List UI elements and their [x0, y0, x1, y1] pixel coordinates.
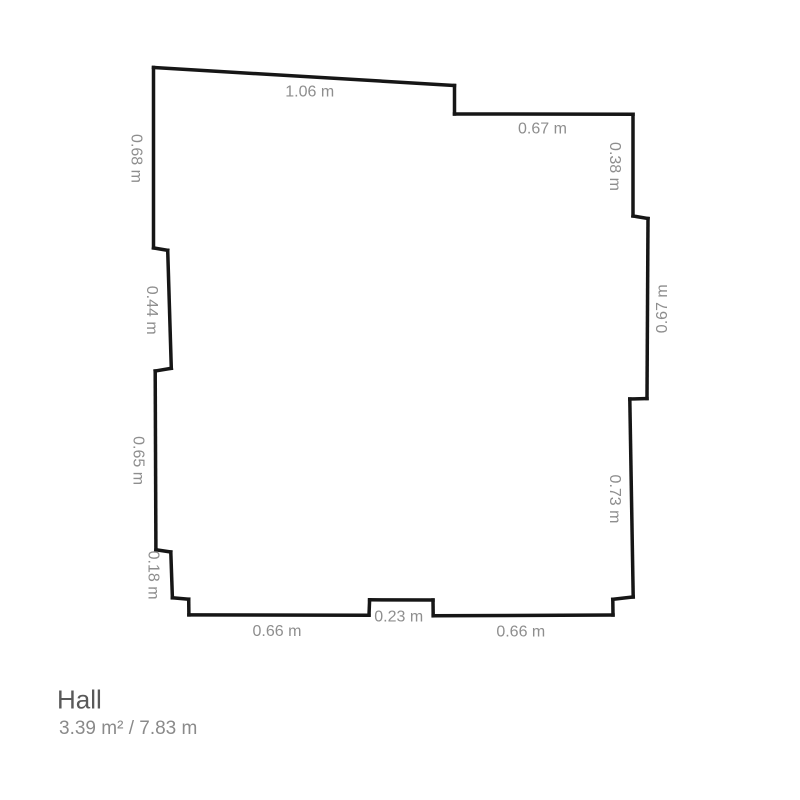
svg-text:0.66 m: 0.66 m: [253, 623, 302, 640]
svg-text:0.23 m: 0.23 m: [374, 608, 423, 625]
svg-text:0.66 m: 0.66 m: [496, 623, 545, 640]
svg-text:1.06 m: 1.06 m: [285, 84, 334, 101]
svg-text:0.67 m: 0.67 m: [518, 121, 567, 138]
svg-text:0.67 m: 0.67 m: [654, 284, 671, 333]
svg-text:0.44 m: 0.44 m: [143, 286, 160, 335]
svg-text:0.68 m: 0.68 m: [128, 134, 145, 183]
svg-text:3.39 m² / 7.83 m: 3.39 m² / 7.83 m: [59, 718, 197, 739]
svg-text:Hall: Hall: [57, 685, 102, 715]
svg-text:0.73 m: 0.73 m: [606, 475, 623, 524]
svg-text:0.18 m: 0.18 m: [144, 551, 161, 600]
svg-text:0.65 m: 0.65 m: [129, 436, 146, 485]
svg-text:0.38 m: 0.38 m: [606, 142, 623, 191]
